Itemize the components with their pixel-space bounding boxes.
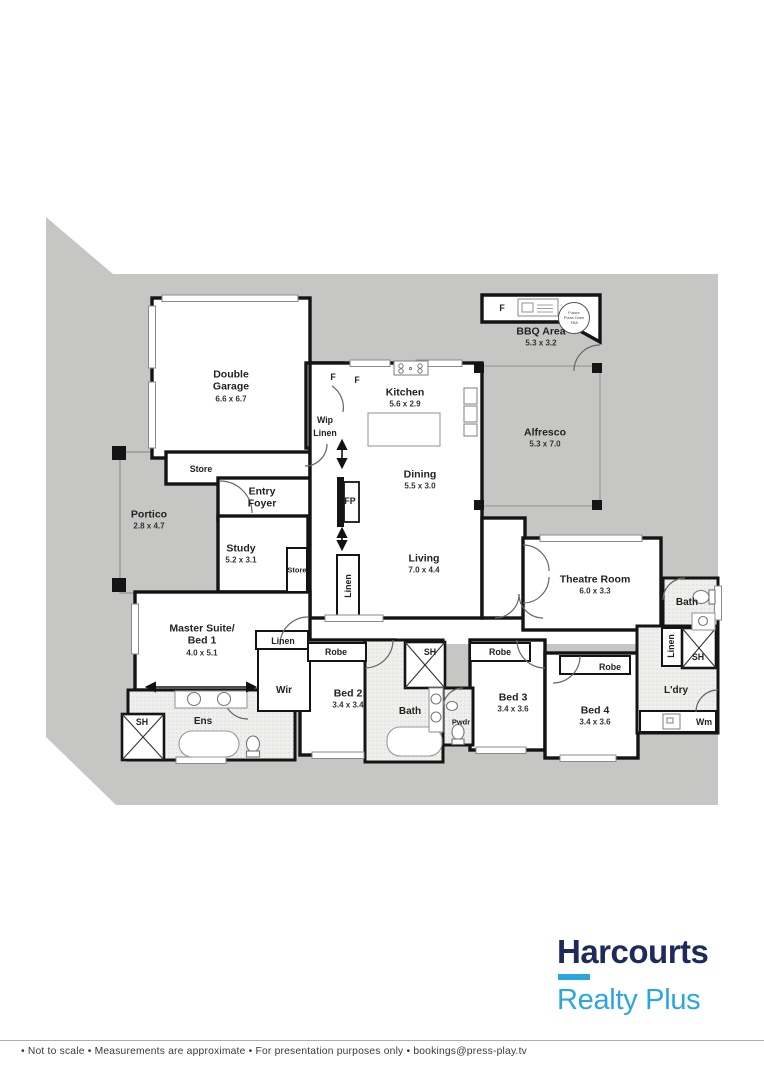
robe4-box xyxy=(560,656,630,674)
garage-room xyxy=(152,298,310,458)
kitchen-dining-living-room xyxy=(310,363,482,618)
entry-foyer-room xyxy=(218,478,310,520)
oven-icon xyxy=(464,388,477,404)
basin-icon xyxy=(188,693,201,706)
basin-icon xyxy=(699,617,708,626)
robe2-box xyxy=(308,643,366,661)
oven-icon xyxy=(464,424,477,436)
basin-icon xyxy=(431,712,441,722)
toilet-icon xyxy=(452,725,464,740)
pizza-oven-icon xyxy=(559,303,590,334)
toilet-icon xyxy=(247,736,260,752)
logo-brand-text: Harcourts xyxy=(557,933,708,971)
theatre-room xyxy=(523,538,661,630)
island-bench xyxy=(368,413,440,446)
logo-sub-text: Realty Plus xyxy=(557,984,708,1017)
fireplace xyxy=(337,477,359,527)
robe3-box xyxy=(470,643,530,661)
living-extension xyxy=(482,518,525,618)
footer-disclaimer: • Not to scale • Measurements are approx… xyxy=(21,1046,527,1057)
logo-accent-bar xyxy=(558,974,590,980)
linen-right-box xyxy=(662,628,682,666)
store-small-box xyxy=(287,548,307,592)
floorplan-drawing xyxy=(0,0,764,1080)
wir-box xyxy=(258,649,310,711)
floorplan-page: Double Garage6.6 x 6.7StorePortico2.8 x … xyxy=(0,0,764,1080)
footer-divider xyxy=(0,1040,764,1041)
oven-icon xyxy=(464,406,477,422)
linen-living-box xyxy=(337,555,359,617)
bathtub-icon xyxy=(179,731,239,757)
basin-icon xyxy=(218,693,231,706)
bbq-grill-icon xyxy=(518,299,558,316)
basin-icon xyxy=(447,702,458,711)
ensuite-vanity xyxy=(175,691,247,708)
toilet-icon xyxy=(693,591,709,604)
alfresco-area xyxy=(482,366,600,506)
agency-logo: Harcourts Realty Plus xyxy=(557,933,708,1017)
basin-icon xyxy=(431,694,441,704)
